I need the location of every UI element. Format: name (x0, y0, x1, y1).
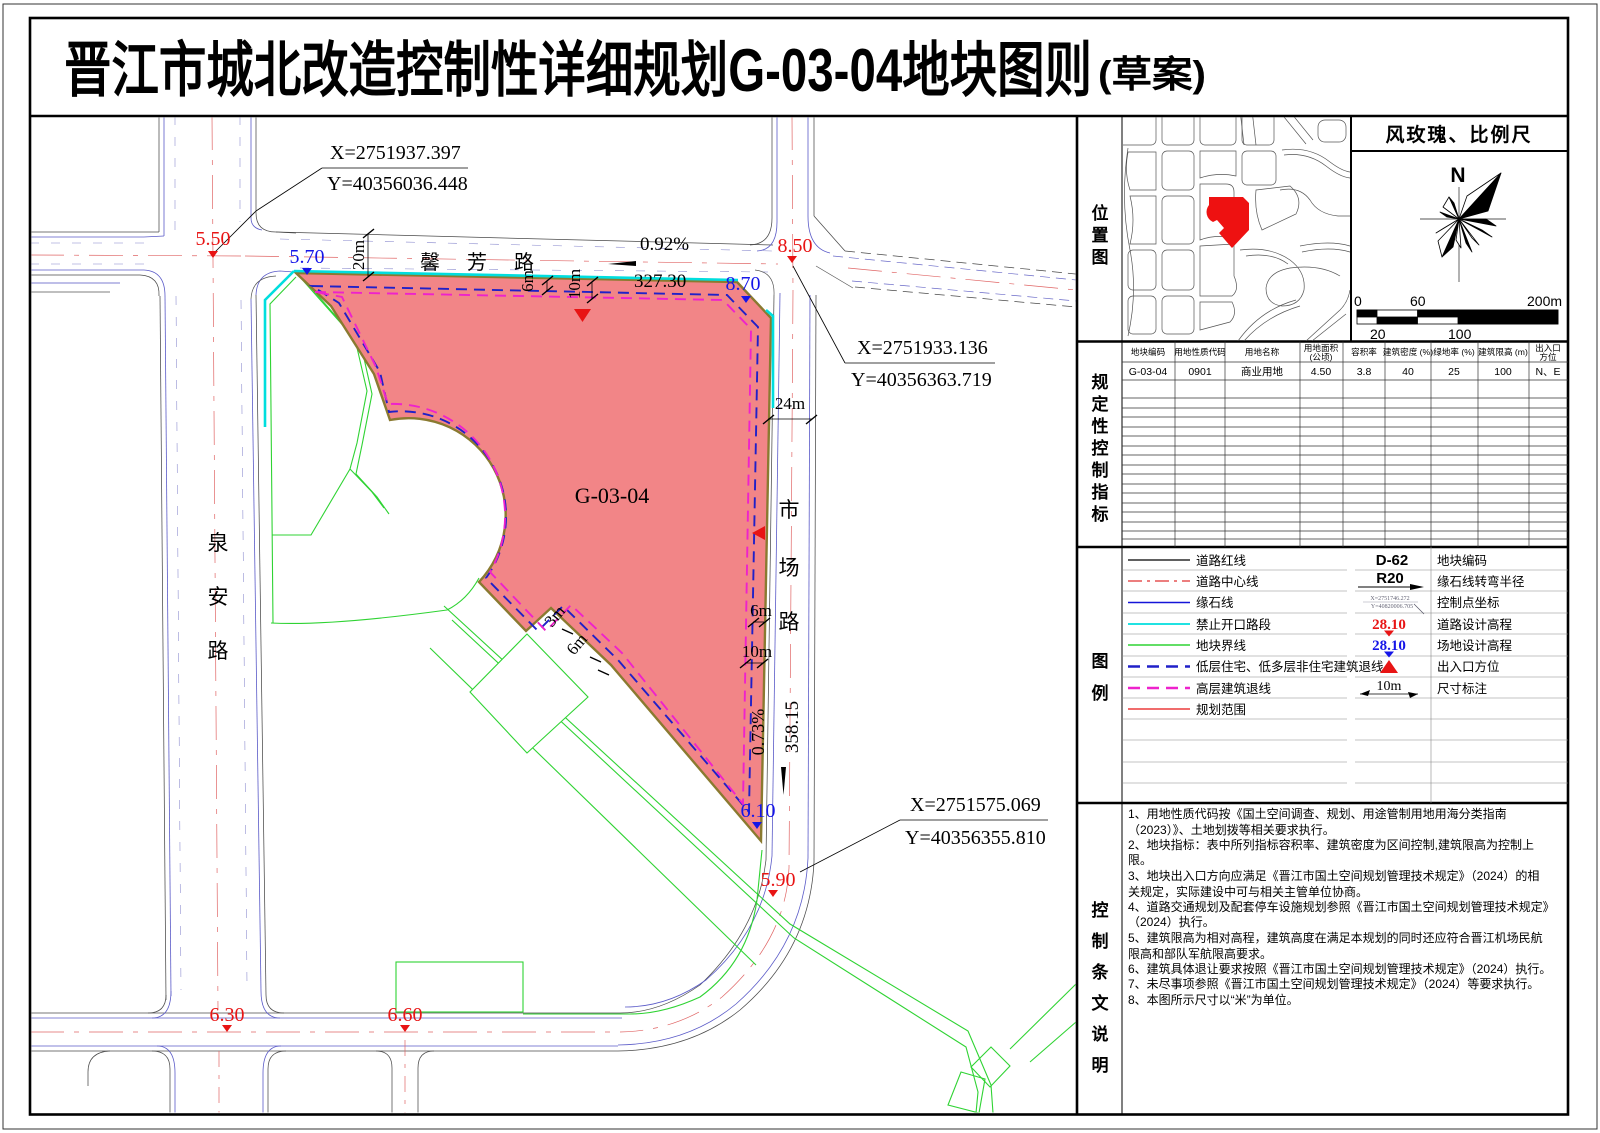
svg-text:6、建筑具体退让要求按照《晋江市国土空间规划管理技术规定》（: 6、建筑具体退让要求按照《晋江市国土空间规划管理技术规定》（2024）执行。 (1128, 961, 1551, 976)
svg-text:10m: 10m (1377, 679, 1402, 694)
svg-text:说: 说 (1092, 1024, 1109, 1044)
svg-text:出入口方位: 出入口方位 (1437, 659, 1500, 674)
svg-text:地块界线: 地块界线 (1196, 639, 1247, 653)
svg-text:(公顷): (公顷) (1310, 352, 1333, 362)
svg-text:置: 置 (1092, 226, 1109, 245)
svg-text:N、E: N、E (1535, 366, 1560, 378)
svg-text:4.50: 4.50 (1311, 366, 1332, 378)
svg-text:0: 0 (1354, 293, 1362, 309)
svg-text:路: 路 (208, 640, 229, 663)
svg-text:25: 25 (1448, 366, 1460, 378)
svg-text:条: 条 (1091, 962, 1110, 982)
svg-text:X=2751933.136: X=2751933.136 (857, 337, 988, 359)
svg-text:图: 图 (1092, 248, 1109, 267)
svg-text:制: 制 (1092, 931, 1109, 951)
svg-text:缘石线转弯半径: 缘石线转弯半径 (1437, 574, 1525, 589)
svg-text:例: 例 (1092, 683, 1109, 703)
svg-text:控: 控 (1092, 900, 1109, 920)
svg-text:5、建筑限高为相对高程，建筑高度在满足本规划的同时还应符合晋: 5、建筑限高为相对高程，建筑高度在满足本规划的同时还应符合晋江机场民航 (1128, 930, 1543, 945)
svg-text:N: N (1450, 164, 1465, 187)
svg-text:位: 位 (1092, 203, 1109, 223)
svg-text:6m: 6m (750, 601, 772, 620)
svg-text:8.70: 8.70 (726, 273, 761, 295)
svg-text:制: 制 (1092, 460, 1109, 480)
svg-text:控: 控 (1092, 438, 1109, 458)
svg-text:2、地块指标：表中所列指标容积率、建筑密度为区间控制,建筑限: 2、地块指标：表中所列指标容积率、建筑密度为区间控制,建筑限高为控制上 (1128, 837, 1534, 852)
svg-text:（2023）》、土地划拨等相关要求执行。: （2023）》、土地划拨等相关要求执行。 (1128, 823, 1335, 837)
svg-text:5.70: 5.70 (290, 246, 325, 268)
svg-text:G-03-04: G-03-04 (575, 483, 650, 508)
svg-text:安: 安 (208, 586, 229, 609)
svg-text:R20: R20 (1376, 570, 1404, 587)
svg-text:100: 100 (1494, 366, 1512, 378)
svg-text:路: 路 (779, 611, 800, 634)
svg-text:D-62: D-62 (1376, 552, 1409, 569)
svg-text:7、未尽事项参照《晋江市国土空间规划管理技术规定》（2024: 7、未尽事项参照《晋江市国土空间规划管理技术规定》（2024）等要求执行。 (1128, 976, 1539, 991)
svg-text:规划范围: 规划范围 (1196, 702, 1246, 717)
svg-text:性: 性 (1092, 416, 1109, 436)
svg-text:5.50: 5.50 (196, 228, 231, 250)
svg-text:场: 场 (779, 557, 800, 580)
svg-text:358.15: 358.15 (782, 701, 803, 753)
svg-text:风玫瑰、比例尺: 风玫瑰、比例尺 (1385, 123, 1532, 146)
svg-text:Y=40356363.719: Y=40356363.719 (851, 369, 992, 391)
svg-text:尺寸标注: 尺寸标注 (1437, 681, 1488, 696)
svg-text:道路设计高程: 道路设计高程 (1437, 617, 1513, 632)
svg-text:10m: 10m (565, 269, 584, 299)
svg-text:地块编码: 地块编码 (1437, 553, 1487, 568)
svg-text:8.50: 8.50 (778, 235, 813, 257)
svg-text:(草案): (草案) (1098, 54, 1206, 95)
svg-text:200m: 200m (1527, 293, 1562, 309)
svg-text:0901: 0901 (1188, 366, 1212, 378)
svg-text:Y=40356036.448: Y=40356036.448 (327, 173, 468, 195)
svg-text:100: 100 (1448, 326, 1472, 342)
svg-text:5.90: 5.90 (761, 869, 796, 891)
svg-text:10m: 10m (742, 642, 772, 661)
svg-text:控制点坐标: 控制点坐标 (1437, 596, 1500, 610)
svg-text:用地性质代码: 用地性质代码 (1174, 346, 1226, 357)
svg-text:X=2751746.272: X=2751746.272 (1370, 596, 1409, 602)
svg-text:地块编码: 地块编码 (1131, 346, 1166, 357)
svg-text:市: 市 (779, 499, 800, 522)
svg-text:规: 规 (1092, 373, 1109, 392)
svg-text:晋江市城北改造控制性详细规划G-03-04地块图则: 晋江市城北改造控制性详细规划G-03-04地块图则 (64, 37, 1092, 104)
svg-text:327.30: 327.30 (634, 271, 686, 292)
svg-text:60: 60 (1410, 293, 1426, 309)
svg-text:20m: 20m (349, 240, 368, 270)
svg-text:禁止开口路段: 禁止开口路段 (1196, 617, 1271, 632)
svg-text:6m: 6m (518, 270, 537, 292)
svg-text:关规定，实际建设中可与相关主管单位协商。: 关规定，实际建设中可与相关主管单位协商。 (1128, 884, 1368, 899)
svg-text:指: 指 (1092, 482, 1109, 502)
svg-text:容积率: 容积率 (1351, 346, 1377, 357)
svg-text:馨芳路: 馨芳路 (420, 251, 561, 274)
svg-text:建筑密度 (%): 建筑密度 (%) (1383, 346, 1433, 357)
svg-text:商业用地: 商业用地 (1241, 365, 1283, 378)
svg-text:Y=40820006.705: Y=40820006.705 (1371, 604, 1413, 610)
svg-text:泉: 泉 (208, 532, 229, 555)
svg-text:限高和部队军航限高要求。: 限高和部队军航限高要求。 (1128, 946, 1272, 961)
svg-text:6.10: 6.10 (741, 800, 776, 822)
svg-text:Y=40356355.810: Y=40356355.810 (905, 827, 1046, 849)
svg-text:道路中心线: 道路中心线 (1196, 574, 1259, 589)
svg-text:高层建筑退线: 高层建筑退线 (1196, 681, 1272, 696)
svg-text:3、地块出入口方向应满足《晋江市国土空间规划管理技术规定》（: 3、地块出入口方向应满足《晋江市国土空间规划管理技术规定》（2024）的相 (1128, 868, 1539, 883)
svg-text:缘石线: 缘石线 (1196, 596, 1234, 610)
svg-text:6.60: 6.60 (388, 1004, 423, 1026)
svg-text:明: 明 (1092, 1056, 1109, 1075)
svg-text:0.73%: 0.73% (748, 709, 768, 756)
svg-text:40: 40 (1402, 366, 1414, 378)
svg-text:低层住宅、低多层非住宅建筑退线: 低层住宅、低多层非住宅建筑退线 (1196, 659, 1384, 674)
svg-text:文: 文 (1092, 993, 1110, 1013)
svg-text:X=2751575.069: X=2751575.069 (910, 794, 1041, 816)
svg-text:方位: 方位 (1539, 351, 1557, 362)
svg-text:1、用地性质代码按《国土空间调查、规划、用途管制用地用海分类: 1、用地性质代码按《国土空间调查、规划、用途管制用地用海分类指南 (1128, 806, 1507, 821)
svg-text:定: 定 (1092, 394, 1109, 414)
svg-text:G-03-04: G-03-04 (1129, 366, 1168, 378)
svg-text:24m: 24m (775, 394, 805, 413)
svg-text:图: 图 (1092, 652, 1109, 671)
svg-text:绿地率 (%): 绿地率 (%) (1433, 346, 1475, 357)
svg-text:（2024）执行。: （2024）执行。 (1128, 915, 1215, 929)
svg-text:3.8: 3.8 (1357, 366, 1372, 378)
svg-text:建筑限高 (m): 建筑限高 (m) (1478, 346, 1528, 357)
svg-text:X=2751937.397: X=2751937.397 (330, 142, 461, 164)
svg-text:0.92%: 0.92% (640, 234, 689, 255)
svg-text:场地设计高程: 场地设计高程 (1437, 638, 1513, 653)
svg-text:道路红线: 道路红线 (1196, 553, 1247, 568)
svg-text:限。: 限。 (1128, 853, 1152, 867)
svg-text:6.30: 6.30 (210, 1004, 245, 1026)
svg-text:8、本图所示尺寸以“米”为单位。: 8、本图所示尺寸以“米”为单位。 (1128, 992, 1299, 1007)
svg-text:4、道路交通规划及配套停车设施规划参照《晋江市国土空间规划管: 4、道路交通规划及配套停车设施规划参照《晋江市国土空间规划管理技术规定》 (1128, 899, 1555, 914)
svg-text:标: 标 (1092, 504, 1109, 524)
svg-text:用地名称: 用地名称 (1245, 346, 1280, 357)
svg-text:20: 20 (1370, 326, 1386, 342)
